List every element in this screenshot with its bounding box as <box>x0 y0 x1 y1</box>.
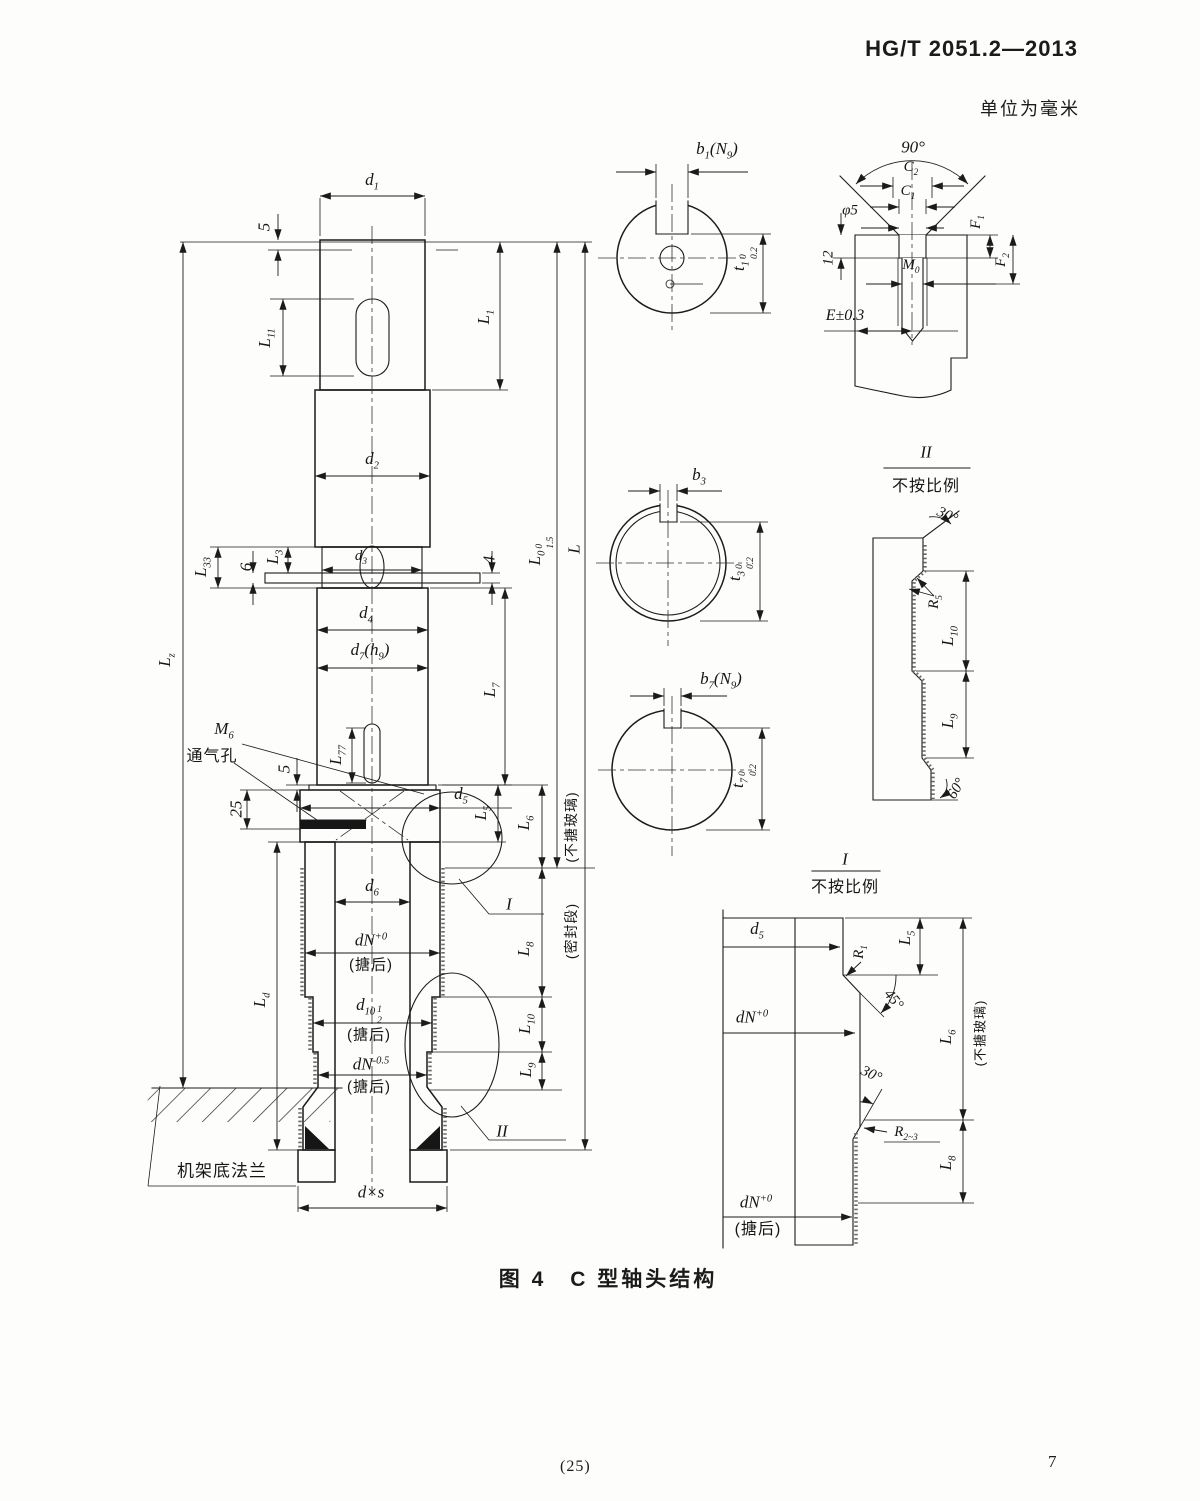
section-circle-b7 <box>598 688 770 856</box>
main-view-dimensions <box>180 196 595 1212</box>
main-view-shaft <box>140 226 566 1196</box>
detail-thread-hole <box>824 161 1020 398</box>
shaft-head-technical-drawing: .o{stroke:#1b1b1b;stroke-width:1.5;fill:… <box>0 0 1200 1501</box>
section-circle-b1 <box>598 164 771 332</box>
detail-view-ii <box>873 468 974 800</box>
detail-view-i <box>723 871 974 1248</box>
standard-document-page: HG/T 2051.2—2013 单位为毫米 .o{stroke:#1b1b1b… <box>0 0 1200 1501</box>
section-circle-b3 <box>596 484 768 646</box>
